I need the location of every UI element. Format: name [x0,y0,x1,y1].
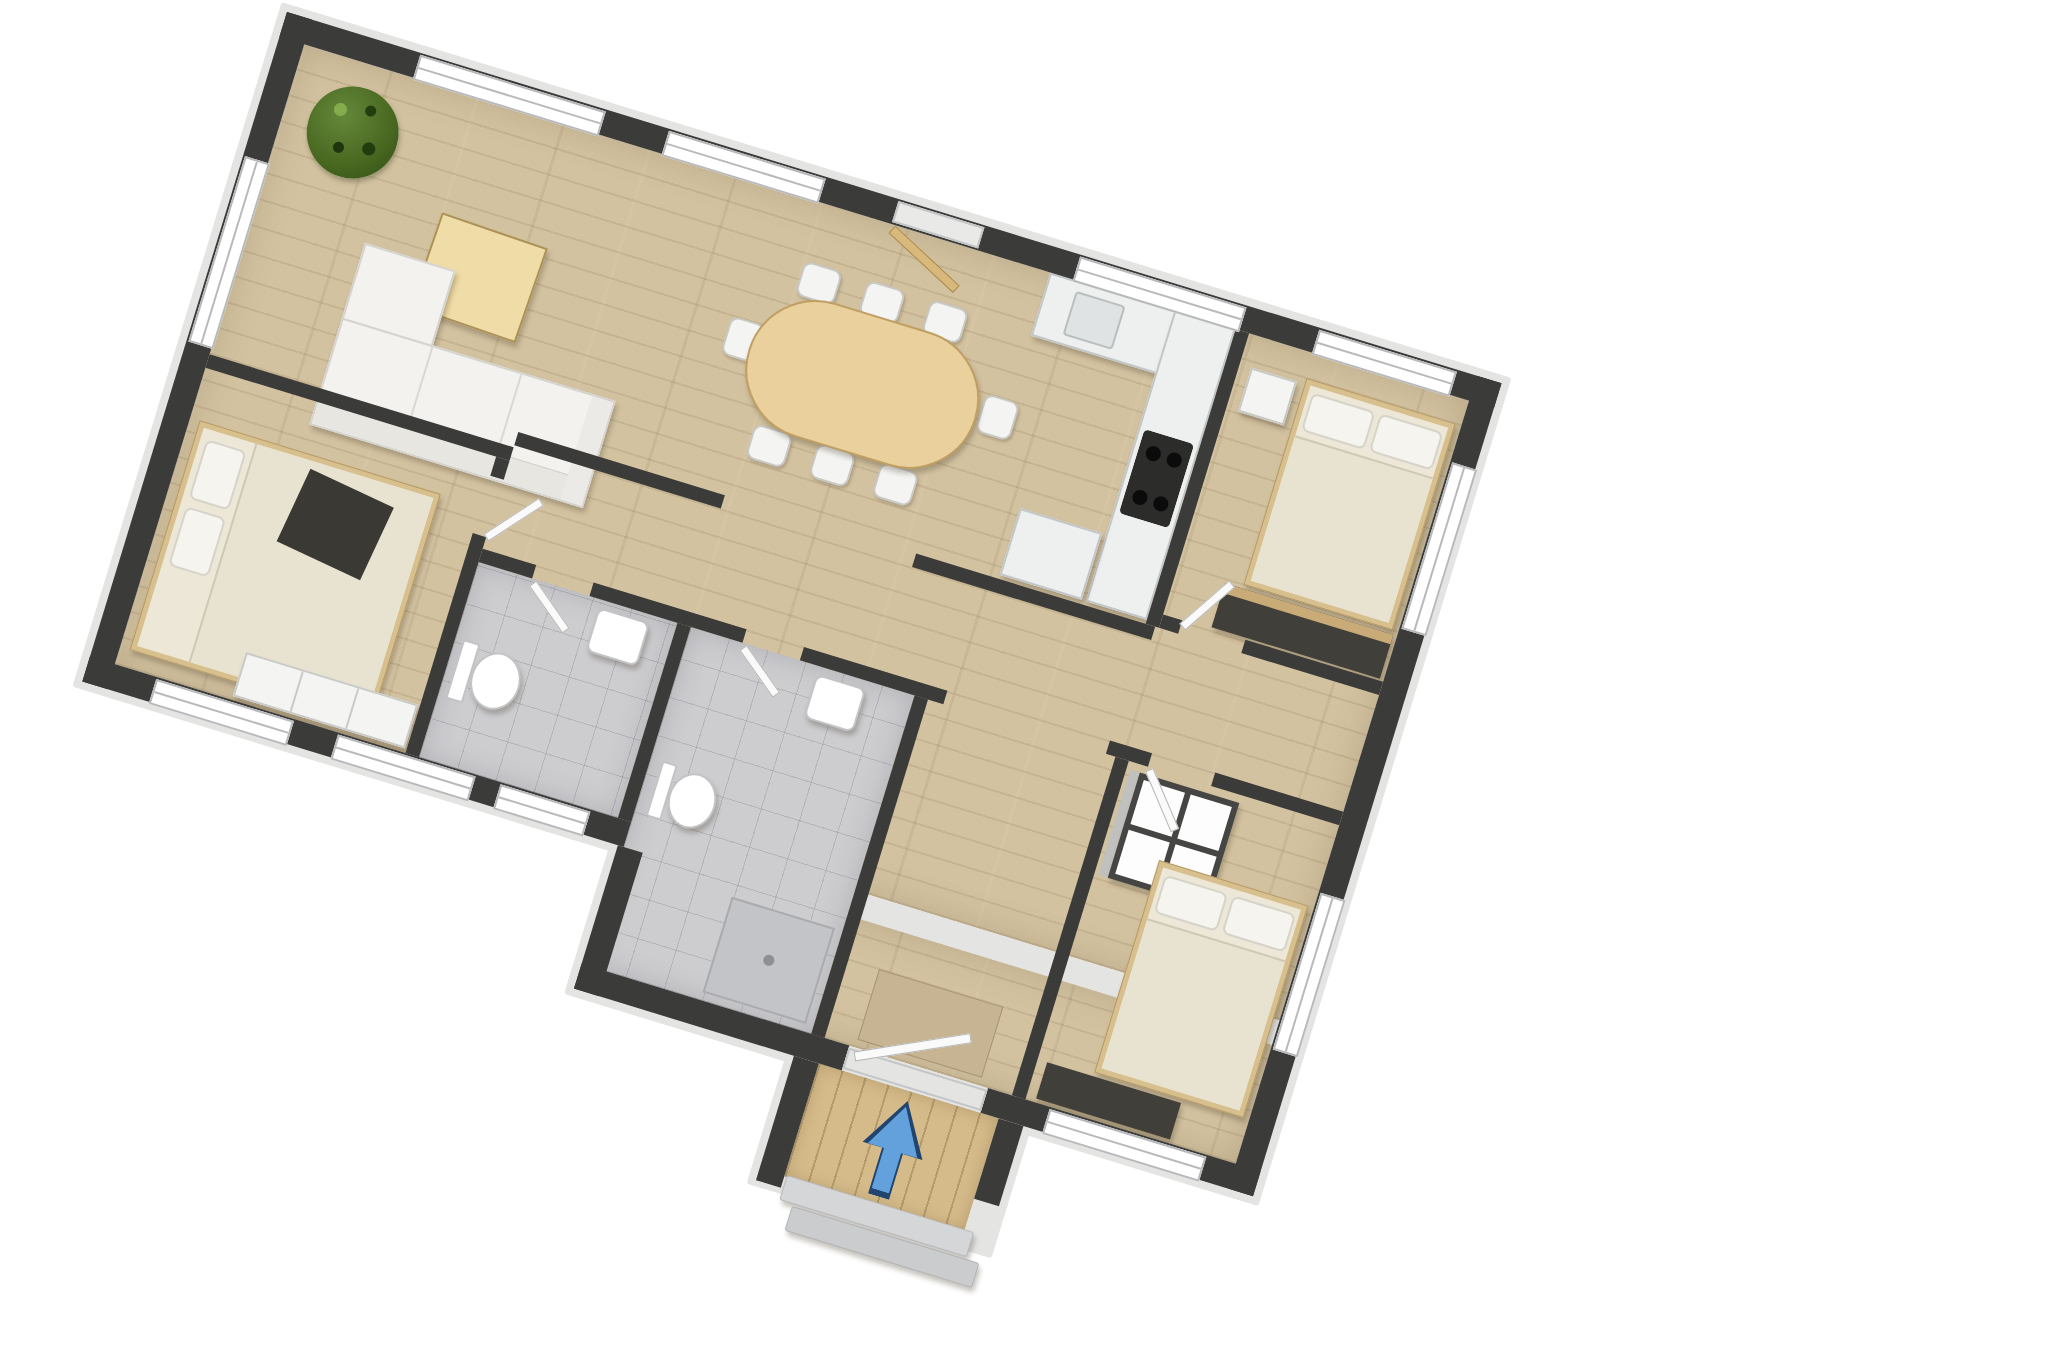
house-plan [0,12,1502,1365]
shelf-cell [1177,794,1232,851]
floorplan-canvas [0,0,2048,1365]
